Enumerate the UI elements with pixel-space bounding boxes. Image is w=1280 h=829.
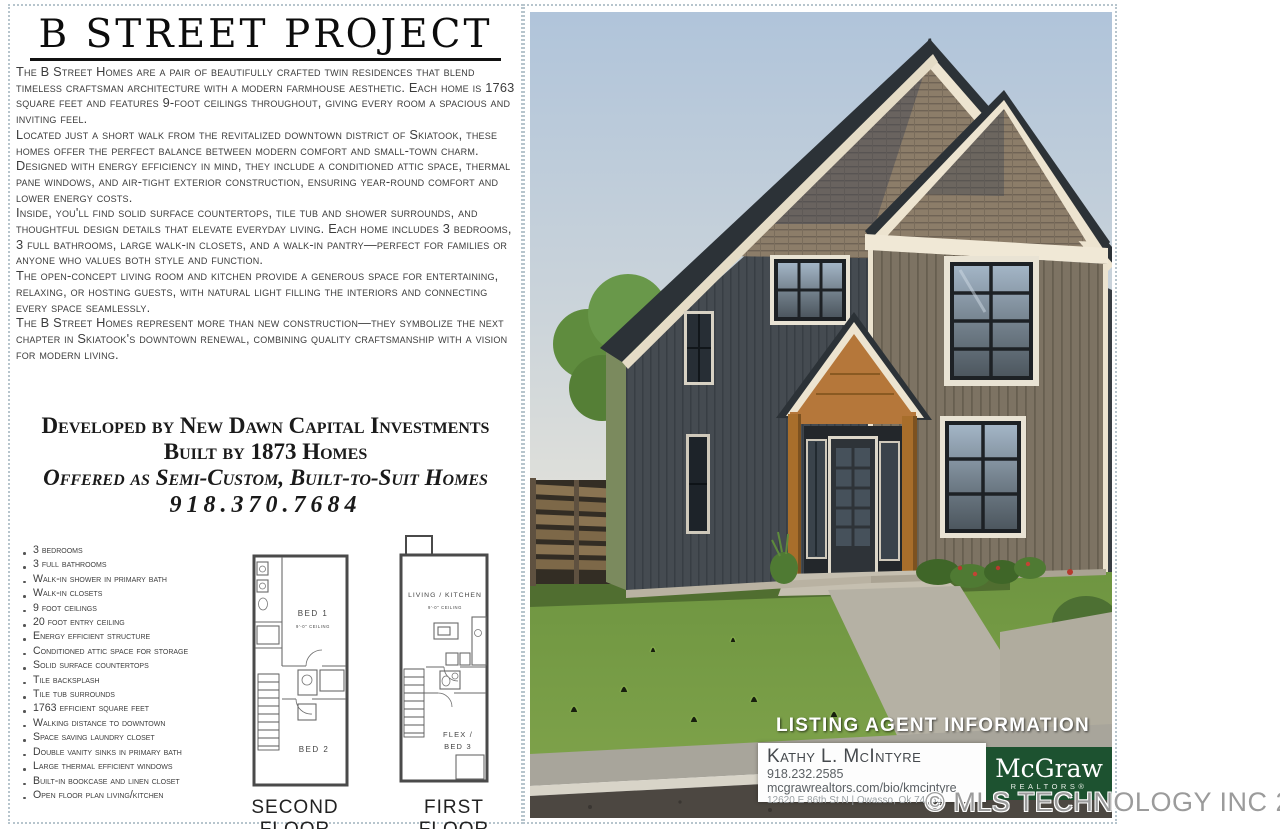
feature-item: Walk-in closets (20, 586, 254, 600)
feature-item: Solid surface countertops (20, 658, 254, 672)
feature-item: Built-in bookcase and linen closet (20, 774, 254, 788)
listing-agent-header: LISTING AGENT INFORMATION (776, 715, 1112, 737)
paragraph: The B Street Homes are a pair of beautif… (16, 64, 518, 127)
living-kitchen-label: LIVING / KITCHEN (408, 592, 482, 599)
feature-item: 3 bedrooms (20, 543, 254, 557)
feature-item: 1763 efficient square feet (20, 701, 254, 715)
mls-watermark: © MLS TECHNOLOGY INC 2025 (925, 787, 1280, 818)
feature-item: Walking distance to downtown (20, 716, 254, 730)
feature-item: 9 foot ceilings (20, 601, 254, 615)
second-floor-plan: BED 1 9'-0" CEILING BED 2 (252, 554, 349, 787)
feature-item: Large thermal efficient windows (20, 759, 254, 773)
feature-list: 3 bedrooms 3 full bathrooms Walk-in show… (20, 543, 254, 802)
description-paragraphs: The B Street Homes are a pair of beautif… (16, 64, 518, 362)
offer-line: Offered as Semi-Custom, Built-to-Suit Ho… (10, 465, 521, 491)
feature-item: Space saving laundry closet (20, 730, 254, 744)
feature-item: 20 foot entry ceiling (20, 615, 254, 629)
contact-phone: 918.370.7684 (10, 491, 521, 519)
first-floor-caption: FIRST FLOOR (388, 797, 520, 829)
agent-phone: 918.232.2585 (767, 767, 986, 781)
feature-item: Energy efficient structure (20, 629, 254, 643)
builder-line: Built by 1873 Homes (10, 439, 521, 465)
feature-item: Double vanity sinks in primary bath (20, 745, 254, 759)
first-floor-plan: LIVING / KITCHEN 9'-0" CEILING FLEX / BE… (398, 533, 493, 787)
agent-name: Kathy L. McIntyre (767, 747, 986, 767)
feature-item: 3 full bathrooms (20, 557, 254, 571)
flex-label-line1: FLEX / (443, 730, 473, 739)
center-window (770, 255, 850, 325)
feature-item: Tile backsplash (20, 673, 254, 687)
second-floor-caption: SECOND FLOOR (216, 797, 374, 829)
house-rendering-photo: LISTING AGENT INFORMATION Kathy L. McInt… (530, 12, 1112, 818)
developer-block: Developed by New Dawn Capital Investment… (10, 413, 521, 519)
title-wrap: B STREET PROJECT (10, 12, 521, 61)
paragraph: Located just a short walk from the revit… (16, 127, 518, 206)
paragraph: The open-concept living room and kitchen… (16, 268, 518, 315)
photo-panel: LISTING AGENT INFORMATION Kathy L. McInt… (523, 4, 1117, 824)
paragraph: Inside, you'll find solid surface counte… (16, 205, 518, 268)
left-upper-window (684, 311, 714, 385)
bed2-label: BED 2 (299, 745, 330, 754)
flyer-text-panel: B STREET PROJECT The B Street Homes are … (8, 4, 523, 824)
bed1-ceiling-label: 9'-0" CEILING (296, 624, 330, 629)
developer-line: Developed by New Dawn Capital Investment… (10, 413, 521, 439)
flex-label-line2: BED 3 (444, 742, 472, 751)
upper-front-window (944, 256, 1039, 386)
paragraph: The B Street Homes represent more than n… (16, 315, 518, 362)
living-ceiling-label: 9'-0" CEILING (428, 605, 462, 610)
feature-item: Tile tub surrounds (20, 687, 254, 701)
page-title: B STREET PROJECT (30, 12, 500, 61)
bed1-label: BED 1 (298, 609, 329, 618)
feature-item: Conditioned attic space for storage (20, 644, 254, 658)
left-lower-window (686, 434, 710, 534)
flyer-page: B STREET PROJECT The B Street Homes are … (0, 0, 1280, 829)
feature-item: Walk-in shower in primary bath (20, 572, 254, 586)
lower-front-window (940, 416, 1026, 538)
brokerage-name: McGraw (995, 756, 1103, 781)
